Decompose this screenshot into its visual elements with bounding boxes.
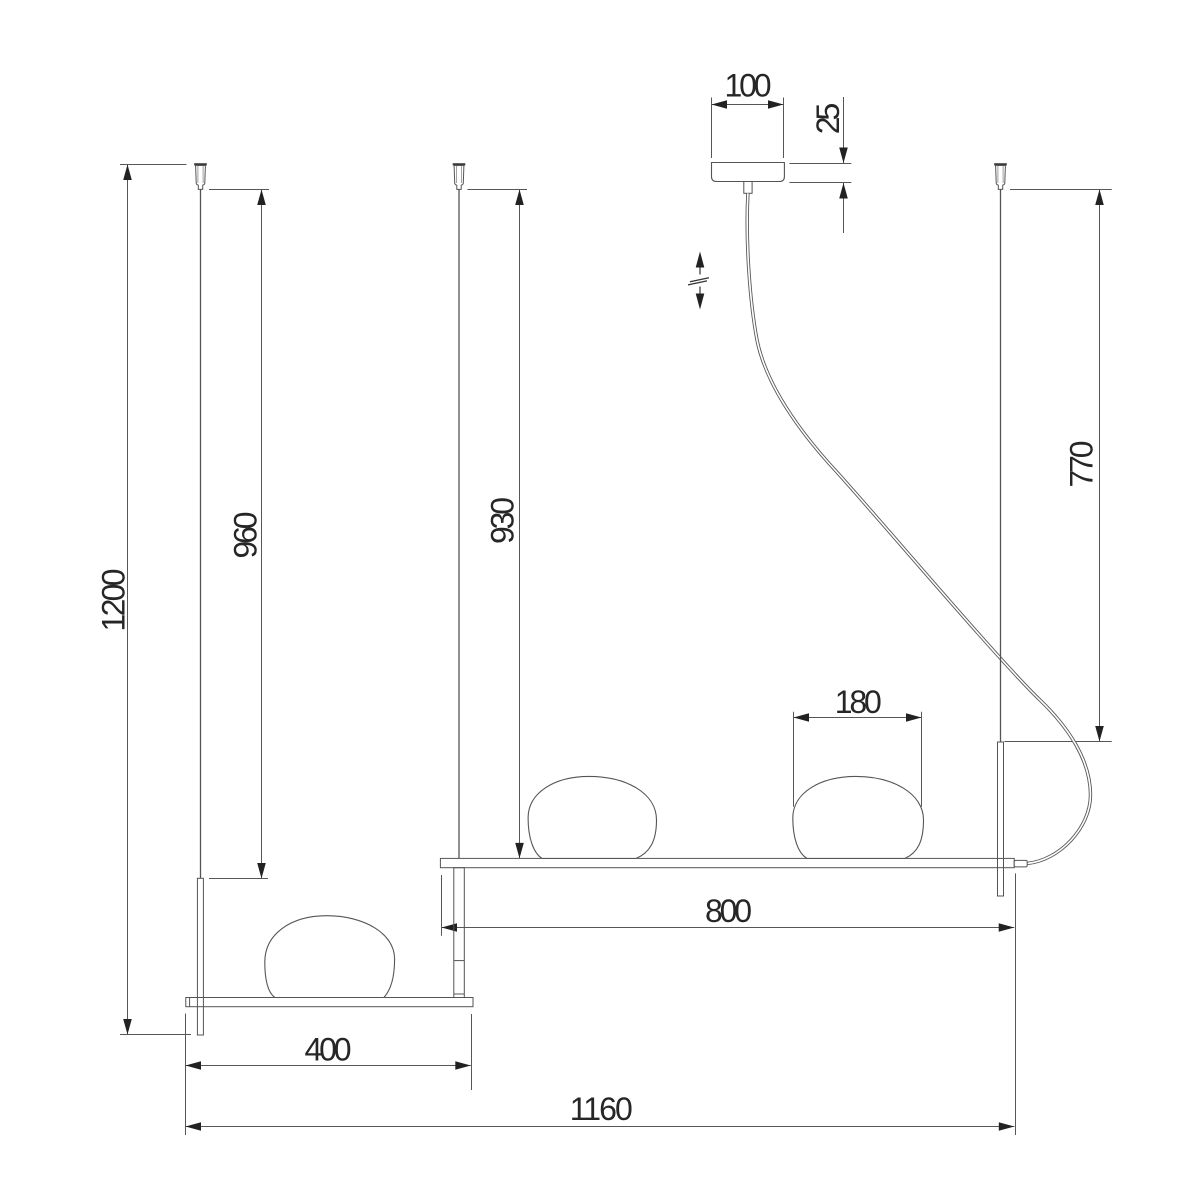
svg-text:25: 25 — [810, 103, 846, 135]
svg-text:400: 400 — [305, 1032, 352, 1068]
svg-text:100: 100 — [725, 68, 772, 104]
svg-text:800: 800 — [705, 893, 752, 929]
svg-text:1160: 1160 — [570, 1091, 633, 1127]
svg-text:960: 960 — [228, 512, 264, 559]
svg-text:930: 930 — [485, 497, 521, 544]
svg-text:770: 770 — [1064, 441, 1100, 488]
svg-text:1200: 1200 — [96, 569, 132, 632]
svg-text:180: 180 — [835, 684, 882, 720]
